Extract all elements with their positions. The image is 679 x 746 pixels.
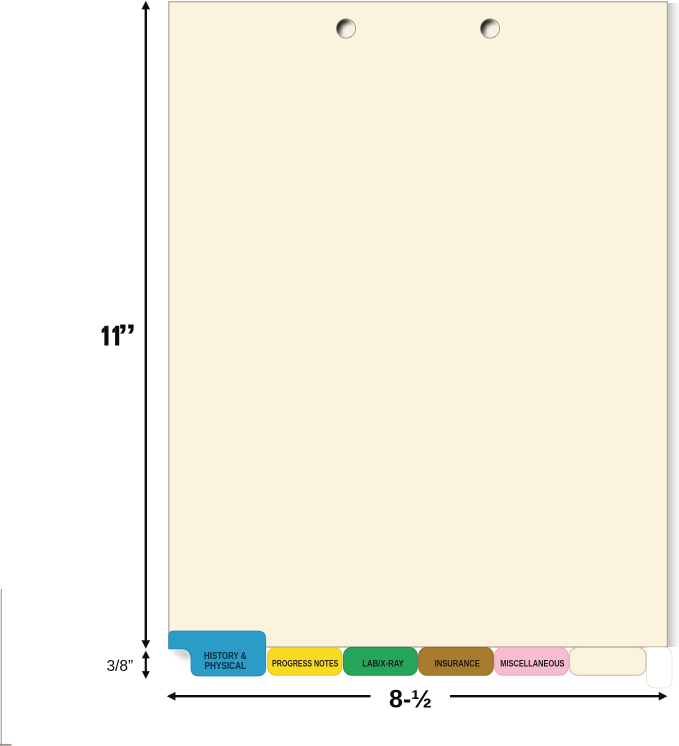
svg-text:8-½: 8-½ (389, 685, 432, 713)
svg-text:”: ” (117, 318, 136, 353)
svg-text:3/8”: 3/8” (106, 658, 133, 675)
svg-text:INSURANCE: INSURANCE (435, 658, 480, 668)
svg-text:MISCELLANEOUS: MISCELLANEOUS (500, 658, 564, 668)
svg-text:LAB/X-RAY: LAB/X-RAY (362, 658, 404, 668)
svg-text:PHYSICAL: PHYSICAL (205, 661, 247, 672)
svg-text:PROGRESS NOTES: PROGRESS NOTES (272, 658, 338, 668)
